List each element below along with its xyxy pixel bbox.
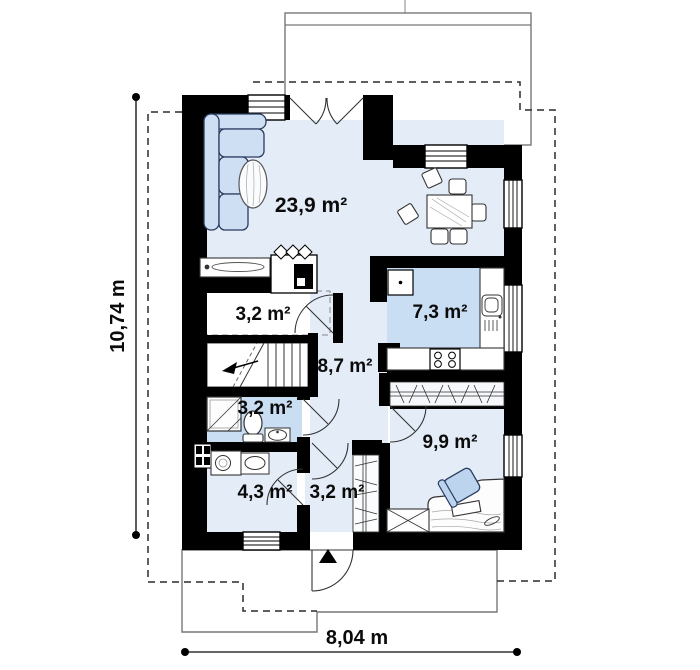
floor-plan-drawing: 23,9 m² 7,3 m² 3,2 m² 8,7 m² 3,2 m² 9,9 … — [0, 0, 700, 670]
entry-hall-label: 3,2 m² — [310, 482, 365, 503]
plant-icon — [239, 160, 267, 208]
bathroom-label: 3,2 m² — [238, 398, 293, 419]
fridge-icon — [388, 270, 413, 295]
laundry-sink-icon — [241, 453, 269, 474]
sideboard-icon — [200, 258, 270, 277]
wardrobe-strip-icon — [390, 382, 504, 406]
stove-icon — [430, 349, 460, 370]
window-top-dining — [425, 145, 467, 168]
hall-label: 8,7 m² — [318, 356, 373, 377]
storage-box-icon — [387, 509, 429, 532]
boiler-icon — [194, 444, 211, 468]
fireplace-icon — [271, 245, 317, 293]
living-room-label: 23,9 m² — [275, 194, 347, 217]
kitchen-label: 7,3 m² — [413, 302, 468, 323]
window-right-kitchen — [504, 285, 522, 352]
porch-slab — [182, 550, 497, 632]
window-right-bedroom — [504, 435, 522, 477]
width-dimension-label: 8,04 m — [326, 627, 388, 649]
shower-icon — [207, 397, 241, 431]
floor-plan-page: 23,9 m² 7,3 m² 3,2 m² 8,7 m² 3,2 m² 9,9 … — [0, 0, 700, 670]
washbasin-icon — [265, 428, 290, 442]
pantry-label: 3,2 m² — [236, 304, 291, 325]
washing-machine-icon — [211, 451, 241, 475]
bedroom-label: 9,9 m² — [423, 432, 478, 453]
window-bottom-utility — [243, 532, 280, 550]
stairs-icon — [207, 343, 308, 387]
height-dimension-label: 10,74 m — [107, 279, 129, 352]
dimension-height: 10,74 m — [107, 93, 140, 539]
window-right-dining — [504, 180, 522, 228]
utility-room-label: 4,3 m² — [238, 482, 293, 503]
